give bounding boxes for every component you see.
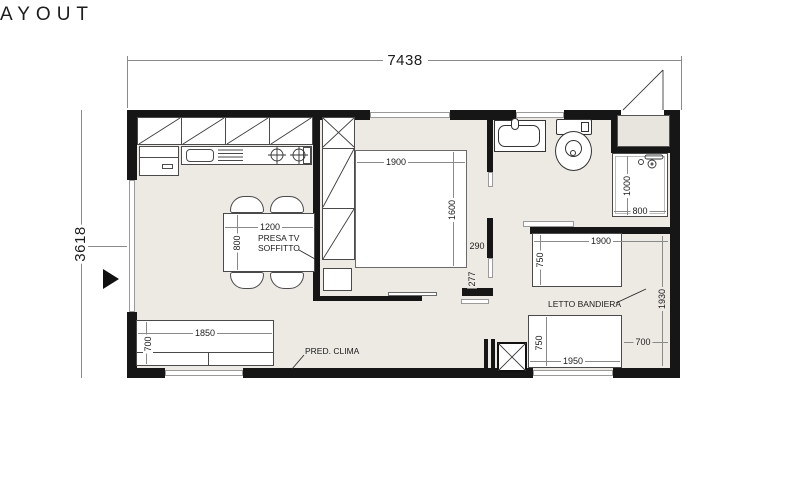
counter-side-panel [303,147,311,164]
fridge-handle [162,164,173,169]
sofa [136,320,274,366]
bed-main-dim-line-w [357,162,465,163]
fridge [139,146,179,176]
dim-overall-width: 7438 [385,53,424,69]
dim-sofa-depth: 700 [143,334,153,353]
window-bottom-1 [165,370,243,376]
dim-shower-depth: 1000 [622,174,632,198]
dim-line-top-right [428,60,681,61]
page-title: AYOUT [0,4,94,26]
chair-top-1 [230,196,264,213]
dim-overall-height: 3618 [73,224,89,263]
note-pred-clima: PRED. CLIMA [305,346,359,356]
tech-wall-bar-2 [491,339,495,373]
shower-closet-block [617,115,670,147]
toilet-tank-button [581,122,589,132]
bed-rear-bottom-dim-line-d [546,317,547,366]
bed-foot-bench [388,292,437,296]
wall-left-1 [127,110,137,180]
floorplan-canvas: AYOUT 7438 3618 [0,0,796,480]
entrance-arrow-icon [103,269,119,289]
bath-faucet [511,118,519,130]
window-bottom-2 [533,370,613,376]
dim-wall-290: 290 [467,241,486,251]
partition-bedroom-bottom [313,296,422,301]
dim-bed-main-width: 1900 [384,157,408,167]
dim-sofa-width: 1850 [193,328,217,338]
note-letto-bandiera: LETTO BANDIERA [548,299,621,309]
partition-bath-b [487,218,493,258]
bath-shelf [523,221,574,227]
cabinet-divider-2 [225,117,226,145]
door-leaf-b [488,258,493,278]
dim-table-width: 1200 [258,222,282,232]
left-window-tick [88,246,127,247]
dim-bed-main-depth: 1600 [447,198,457,222]
wall-top-2 [450,110,516,120]
wardrobe-divider-1 [323,148,354,149]
note-presa-tv: PRESA TV SOFFITTO [258,233,300,253]
door-leaf-c [461,299,489,304]
dim-room-length: 1930 [657,287,667,311]
cabinet-divider-1 [181,117,182,145]
nightstand [323,268,352,291]
tech-box [497,342,527,372]
dim-side-gap: 700 [633,337,652,347]
dim-line-top-left [127,60,383,61]
dim-table-depth: 800 [232,233,242,252]
dim-wall-277: 277 [467,269,477,288]
partition-bath-a [487,110,493,172]
toilet-drain [570,150,576,156]
door-leaf-a [488,172,493,187]
bath-sink-basin [498,125,540,147]
dim-ext-top-right [681,56,682,110]
dim-shower-width: 800 [630,206,649,216]
fridge-divider [140,157,178,158]
door-swing [623,70,663,110]
dim-ext-top-left [127,56,128,108]
tech-wall-bar-1 [484,339,488,373]
sofa-divider-h [137,352,273,353]
dim-bed-rear-bottom-depth: 750 [534,333,544,352]
dim-bed-rear-top-depth: 750 [535,250,545,269]
dim-bed-rear-bottom-width: 1950 [561,356,585,366]
window-top-1 [370,112,450,118]
wall-right [670,110,680,378]
chair-top-2 [270,196,304,213]
kitchen-sink-basin [186,149,214,162]
cabinet-divider-3 [269,117,270,145]
wall-bottom-2 [243,368,533,378]
dim-bed-rear-top-width: 1900 [589,236,613,246]
wardrobe-divider-2 [323,208,354,209]
sofa-divider-v [208,352,209,366]
partition-stub [462,288,493,296]
wardrobe [322,117,355,260]
window-top-2 [516,112,564,118]
window-left [129,180,135,312]
